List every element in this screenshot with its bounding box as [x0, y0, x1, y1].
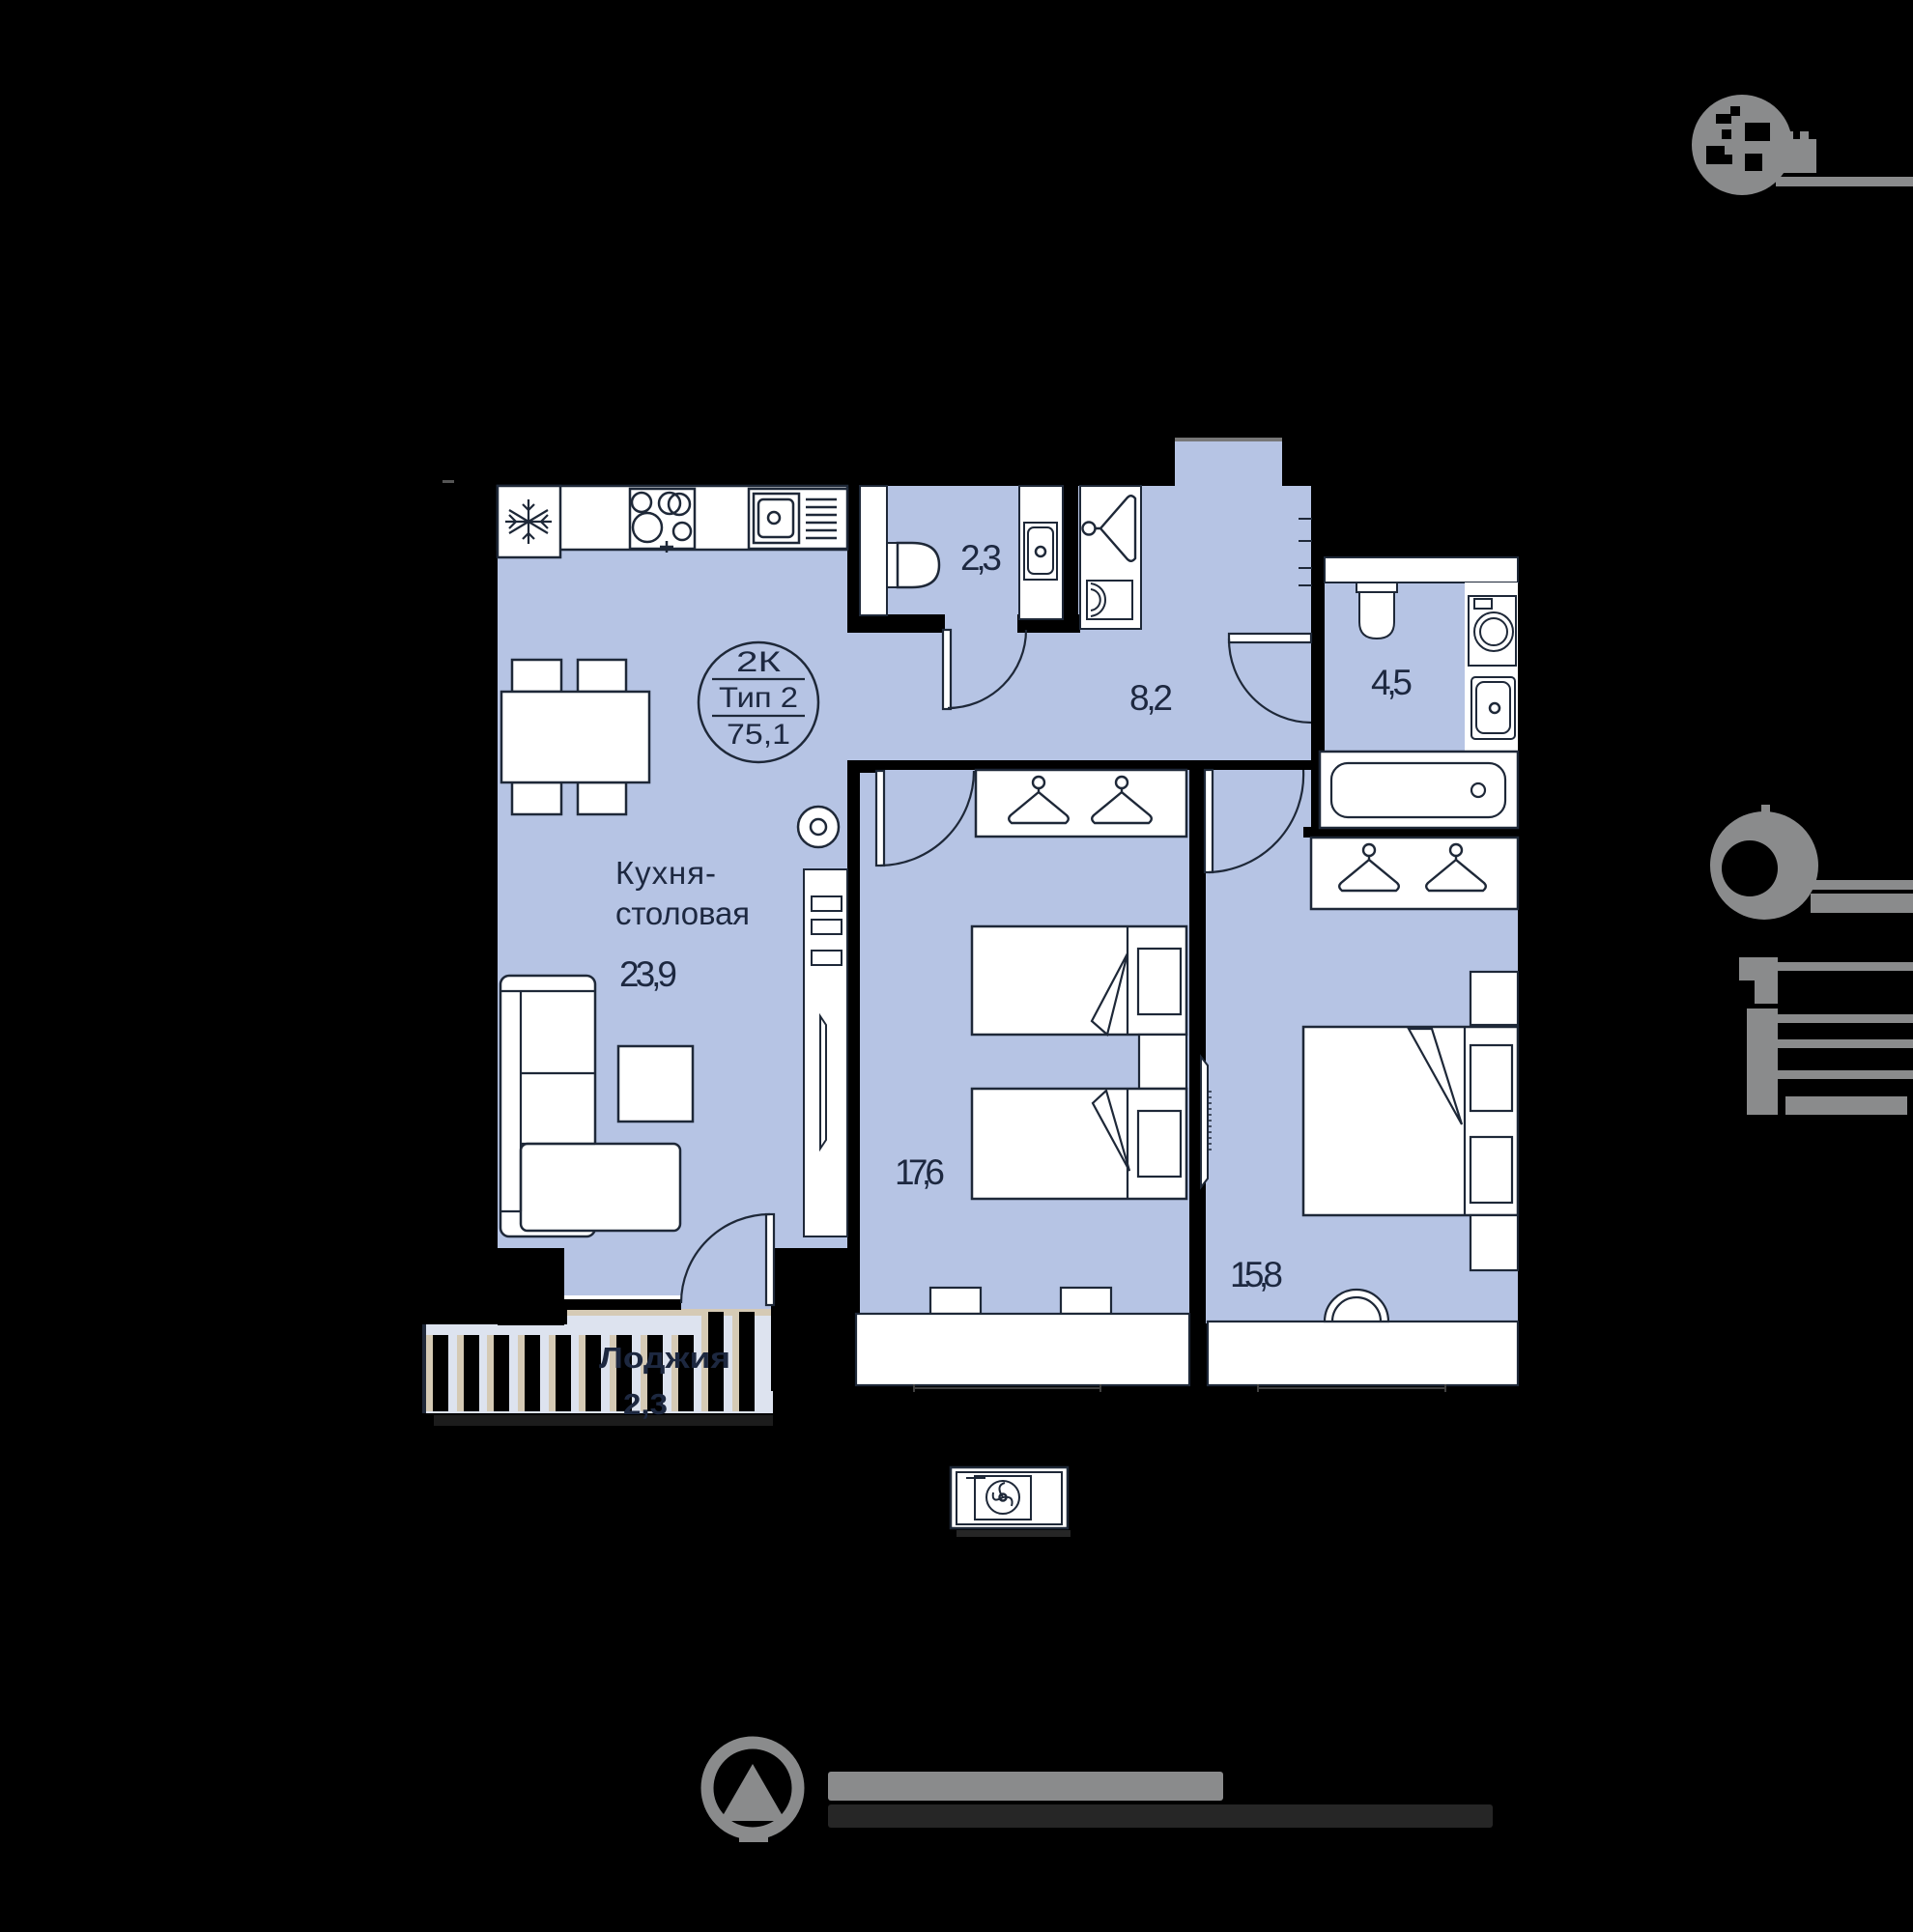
svg-text:17,6: 17,6 — [895, 1152, 945, 1192]
svg-text:23,9: 23,9 — [619, 954, 677, 994]
svg-text:Кухня-: Кухня- — [615, 855, 716, 891]
svg-text:2К: 2К — [736, 646, 782, 678]
svg-text:8,2: 8,2 — [1129, 678, 1173, 718]
svg-text:столовая: столовая — [615, 895, 750, 931]
svg-text:2,3: 2,3 — [623, 1387, 668, 1421]
svg-text:Тип 2: Тип 2 — [719, 682, 798, 714]
svg-text:4,5: 4,5 — [1371, 663, 1413, 702]
svg-text:75,1: 75,1 — [727, 719, 790, 751]
svg-text:2,3: 2,3 — [960, 538, 1002, 578]
svg-text:Лоджия: Лоджия — [599, 1341, 730, 1375]
svg-text:15,8: 15,8 — [1230, 1255, 1283, 1294]
